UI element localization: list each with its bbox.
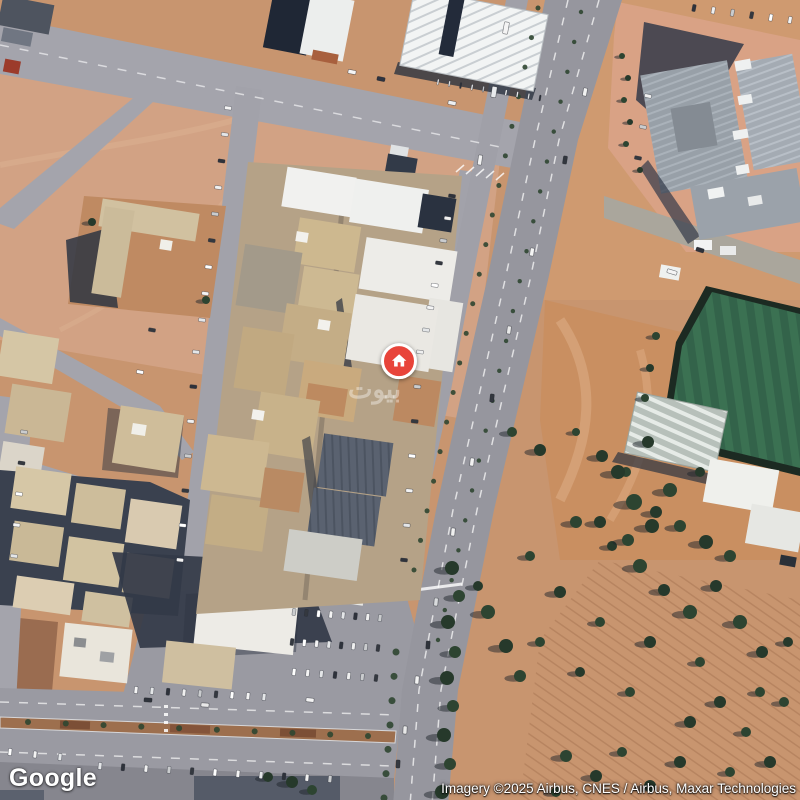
imagery-attribution: Imagery ©2025 Airbus, CNES / Airbus, Max… <box>441 781 796 796</box>
dark-gable-roof-1 <box>317 433 394 496</box>
map-canvas[interactable]: بيوت Google Imagery ©2025 Airbus, CNES /… <box>0 0 800 800</box>
satellite-imagery <box>0 0 800 800</box>
home-pin-graphic <box>377 339 421 383</box>
location-marker[interactable] <box>377 339 421 383</box>
google-logo[interactable]: Google <box>9 764 97 793</box>
